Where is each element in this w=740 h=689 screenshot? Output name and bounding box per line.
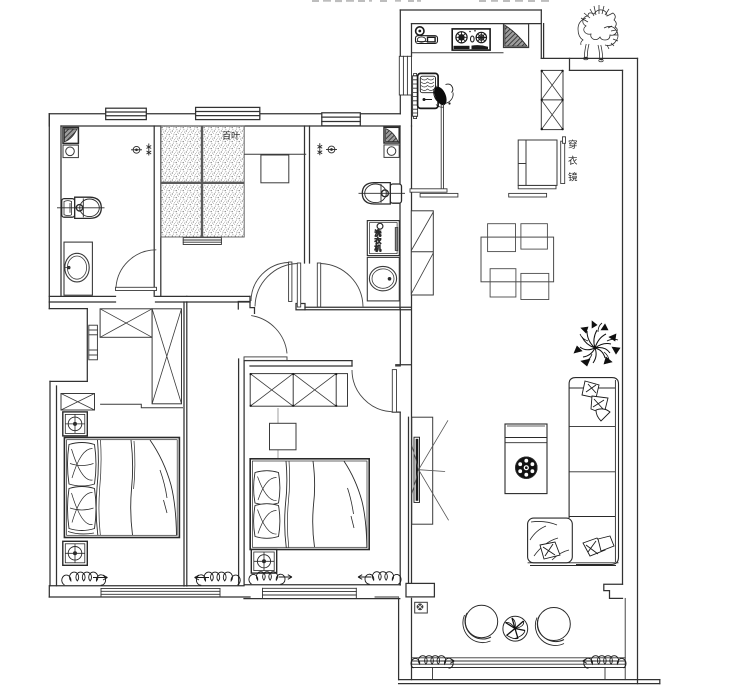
svg-text:衣: 衣 (568, 155, 578, 167)
svg-text:百叶: 百叶 (222, 131, 240, 141)
svg-text:镜: 镜 (568, 172, 578, 184)
svg-text:洗: 洗 (375, 229, 382, 238)
svg-text:机: 机 (375, 244, 382, 253)
svg-text:衣: 衣 (375, 236, 382, 245)
svg-text:穿: 穿 (568, 139, 578, 151)
